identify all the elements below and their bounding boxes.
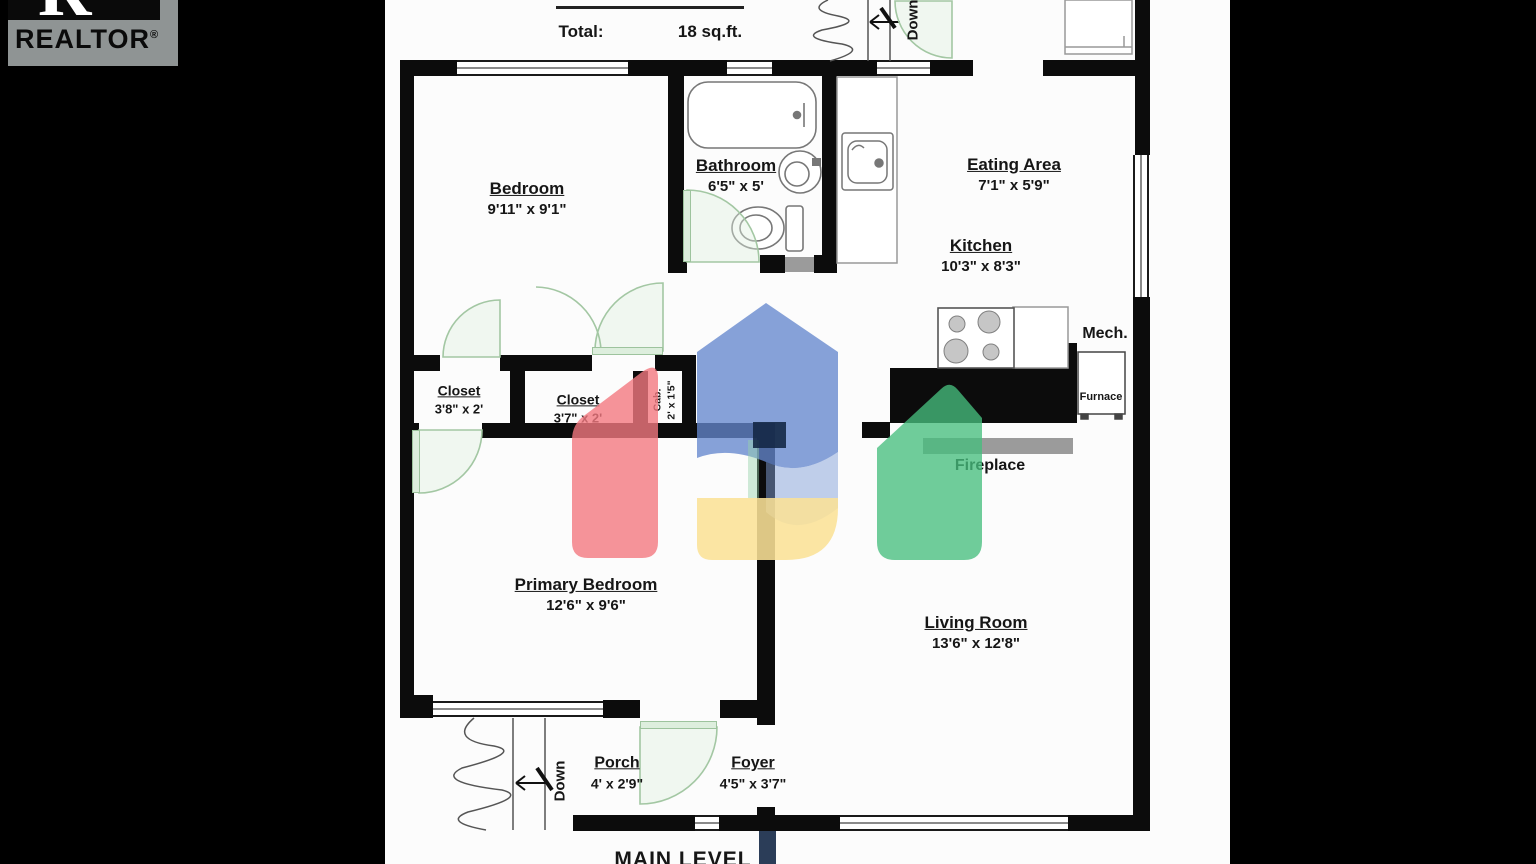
wall bbox=[603, 700, 640, 718]
door-leaf bbox=[640, 721, 717, 729]
wall bbox=[682, 371, 696, 431]
realtor-r-block: R bbox=[8, 0, 160, 20]
wall bbox=[500, 355, 592, 371]
wall bbox=[633, 371, 648, 431]
wall bbox=[510, 371, 525, 423]
room-label-mech: Mech. bbox=[1082, 325, 1127, 343]
window bbox=[433, 701, 603, 717]
room-label-closet-mid: Closet 3'7" x 2' bbox=[554, 390, 603, 427]
room-label-foyer: Foyer 4'5" x 3'7" bbox=[720, 752, 787, 793]
total-value: 18 sq.ft. bbox=[678, 22, 742, 42]
wall bbox=[482, 423, 775, 438]
stairs-down-label-top: Down bbox=[905, 0, 922, 40]
wall bbox=[1133, 297, 1150, 831]
room-label-bathroom: Bathroom 6'5" x 5' bbox=[696, 154, 776, 198]
window bbox=[1133, 155, 1149, 297]
wall bbox=[814, 255, 837, 273]
wall bbox=[573, 815, 695, 831]
wall bbox=[628, 60, 727, 76]
window bbox=[695, 815, 719, 831]
wall bbox=[760, 255, 785, 273]
total-label: Total: bbox=[558, 22, 603, 42]
legend-divider bbox=[556, 6, 744, 9]
wall bbox=[668, 76, 684, 273]
window bbox=[840, 815, 1068, 831]
wall bbox=[400, 60, 414, 718]
window bbox=[457, 60, 628, 76]
wall bbox=[655, 355, 696, 371]
fireplace-hearth bbox=[923, 438, 1073, 454]
wall bbox=[1068, 815, 1150, 831]
wall bbox=[757, 423, 775, 725]
floor-plan-canvas: R REALTOR® Total: 18 sq.ft. bbox=[0, 0, 1536, 864]
fireplace-mass bbox=[890, 368, 1073, 423]
wall bbox=[414, 355, 440, 371]
wall bbox=[930, 60, 973, 76]
wall bbox=[1135, 0, 1150, 155]
wall bbox=[862, 422, 890, 438]
door-leaf bbox=[412, 430, 420, 493]
door-threshold bbox=[785, 257, 814, 272]
room-label-cabinet: Cab. 2' x 1'5" bbox=[651, 380, 680, 419]
realtor-logo: R REALTOR® bbox=[8, 0, 178, 66]
realtor-wordmark: REALTOR® bbox=[15, 24, 159, 55]
room-label-closet-left: Closet 3'8" x 2' bbox=[435, 381, 484, 418]
room-label-kitchen: Kitchen 10'3" x 8'3" bbox=[941, 234, 1021, 278]
room-label-primary-bedroom: Primary Bedroom 12'6" x 9'6" bbox=[515, 573, 658, 617]
window bbox=[877, 60, 930, 76]
stairs-down-label-porch: Down bbox=[552, 761, 569, 802]
wall bbox=[822, 76, 837, 263]
room-label-porch: Porch 4' x 2'9" bbox=[591, 752, 643, 793]
room-label-living-room: Living Room 13'6" x 12'8" bbox=[925, 611, 1028, 655]
wall bbox=[1063, 343, 1077, 423]
room-label-eating-area: Eating Area 7'1" x 5'9" bbox=[967, 153, 1061, 197]
room-label-bedroom: Bedroom 9'11" x 9'1" bbox=[488, 177, 567, 221]
registered-mark: ® bbox=[150, 29, 159, 41]
fireplace-label: Fireplace bbox=[955, 457, 1025, 475]
wall bbox=[1043, 60, 1135, 76]
door-leaf bbox=[683, 190, 691, 262]
wall bbox=[772, 60, 877, 76]
wall bbox=[719, 815, 840, 831]
realtor-r-glyph: R bbox=[38, 0, 91, 20]
wall bbox=[400, 695, 433, 718]
furnace-label: Furnace bbox=[1080, 391, 1123, 403]
wall bbox=[720, 700, 775, 718]
door-leaf bbox=[592, 347, 663, 355]
window bbox=[727, 60, 772, 76]
level-title: MAIN LEVEL bbox=[614, 848, 751, 864]
